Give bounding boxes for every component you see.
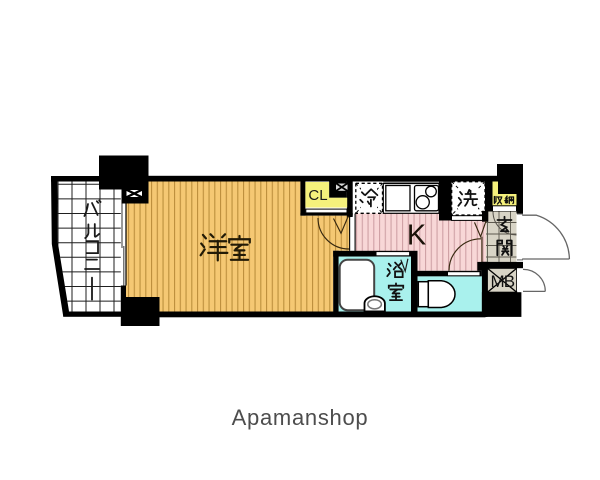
svg-text:Apamanshop: Apamanshop [232, 405, 369, 430]
svg-text:MB: MB [491, 272, 515, 291]
svg-text:K: K [407, 220, 427, 252]
svg-text:CL: CL [308, 187, 327, 204]
